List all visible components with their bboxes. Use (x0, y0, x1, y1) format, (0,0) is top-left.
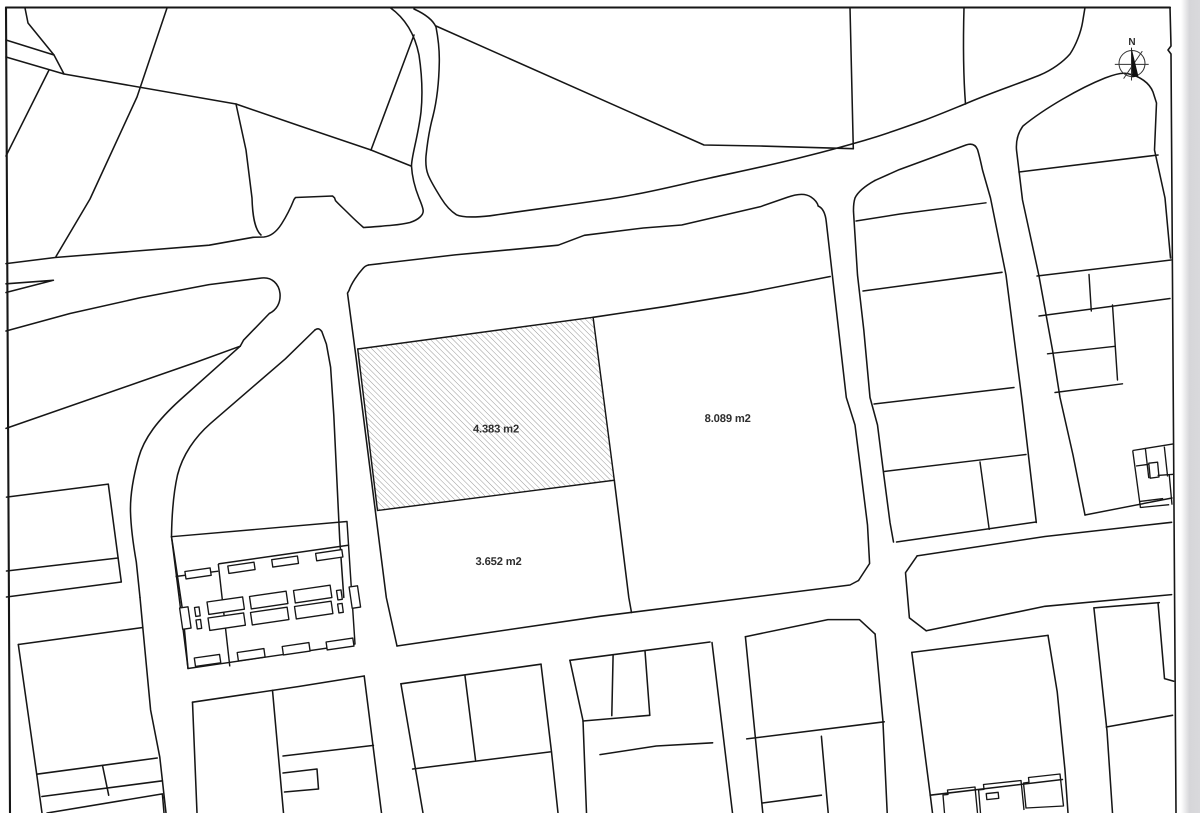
svg-text:N: N (1128, 37, 1135, 48)
svg-text:3.652 m2: 3.652 m2 (476, 556, 522, 568)
svg-text:4.383 m2: 4.383 m2 (473, 423, 519, 435)
svg-text:8.089 m2: 8.089 m2 (705, 413, 751, 425)
